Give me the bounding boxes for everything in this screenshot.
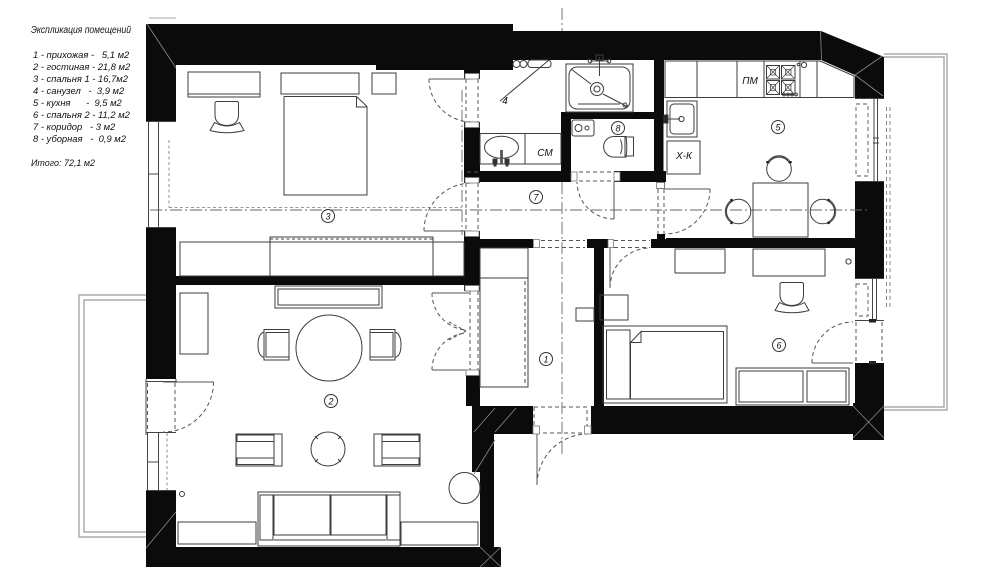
svg-text:7: 7 xyxy=(533,193,539,203)
svg-text:5: 5 xyxy=(775,123,781,133)
svg-text:8 - уборная - 0,9 м2: 8 - уборная - 0,9 м2 xyxy=(33,133,127,144)
svg-text:1 - прихожая - 5,1 м2: 1 - прихожая - 5,1 м2 xyxy=(33,49,130,60)
svg-text:3 - спальня 1 - 16,7м2: 3 - спальня 1 - 16,7м2 xyxy=(33,73,129,84)
svg-text:5 - кухня - 9,5 м2: 5 - кухня - 9,5 м2 xyxy=(33,97,123,108)
svg-text:4: 4 xyxy=(502,96,508,107)
svg-text:Итого: 72,1 м2: Итого: 72,1 м2 xyxy=(31,157,96,168)
svg-text:2: 2 xyxy=(327,397,333,407)
svg-text:8: 8 xyxy=(615,124,620,134)
svg-text:2 - гостиная - 21,8 м2: 2 - гостиная - 21,8 м2 xyxy=(32,61,131,72)
svg-text:4 - санузел - 3,9 м2: 4 - санузел - 3,9 м2 xyxy=(33,85,125,96)
svg-text:7 - коридор - 3 м2: 7 - коридор - 3 м2 xyxy=(33,121,116,132)
svg-text:6 - спальня 2 - 11,2 м2: 6 - спальня 2 - 11,2 м2 xyxy=(33,109,131,120)
svg-text:Экспликация помещений: Экспликация помещений xyxy=(31,25,131,36)
svg-text:3: 3 xyxy=(325,212,330,222)
svg-text:СМ: СМ xyxy=(537,148,553,159)
svg-text:Х-К: Х-К xyxy=(675,151,693,162)
svg-text:1: 1 xyxy=(543,355,548,365)
svg-text:6: 6 xyxy=(776,341,781,351)
svg-text:ПМ: ПМ xyxy=(742,76,758,87)
